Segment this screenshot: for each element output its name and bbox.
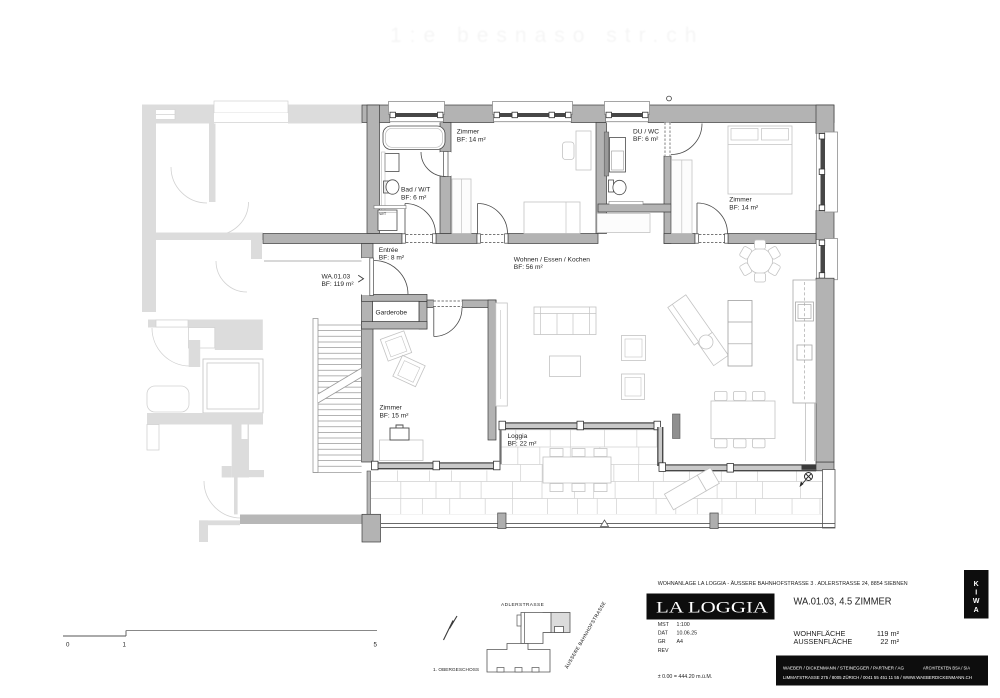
- svg-text:W: W: [973, 598, 980, 605]
- svg-text:1:100: 1:100: [677, 622, 690, 628]
- svg-text:BF: 56 m²: BF: 56 m²: [514, 264, 544, 271]
- svg-text:BF: 22 m²: BF: 22 m²: [508, 441, 538, 448]
- svg-text:5: 5: [374, 642, 378, 649]
- svg-text:± 0.00 = 444.20 m.ü.M.: ± 0.00 = 444.20 m.ü.M.: [658, 674, 713, 680]
- svg-text:BF: 15 m²: BF: 15 m²: [380, 412, 410, 419]
- svg-text:Loggia: Loggia: [508, 433, 528, 440]
- svg-text:GR: GR: [658, 639, 666, 645]
- svg-text:BF: 14 m²: BF: 14 m²: [457, 136, 487, 143]
- svg-text:Wohnen / Essen / Kochen: Wohnen / Essen / Kochen: [514, 256, 590, 263]
- svg-text:REV: REV: [658, 648, 669, 654]
- svg-text:MST: MST: [658, 622, 670, 628]
- svg-text:A: A: [974, 607, 979, 614]
- svg-text:10.06.25: 10.06.25: [677, 631, 698, 637]
- svg-text:K: K: [974, 581, 979, 588]
- svg-text:1:e besnaso str.ch: 1:e besnaso str.ch: [390, 24, 704, 47]
- svg-text:Zimmer: Zimmer: [729, 197, 752, 204]
- svg-text:Bad / W/T: Bad / W/T: [401, 187, 430, 194]
- svg-text:AUSSENFLÄCHE: AUSSENFLÄCHE: [794, 637, 853, 646]
- svg-text:WOHNANLAGE LA LOGGIA - ÄUSSERE: WOHNANLAGE LA LOGGIA - ÄUSSERE BAHNHOFST…: [658, 580, 908, 587]
- svg-text:WA.01.03, 4.5 ZIMMER: WA.01.03, 4.5 ZIMMER: [794, 596, 892, 608]
- svg-text:BF: 119 m²: BF: 119 m²: [322, 281, 355, 288]
- svg-text:Zimmer: Zimmer: [457, 129, 480, 136]
- svg-text:22 m²: 22 m²: [880, 637, 899, 646]
- svg-text:ARCHITEKTEN BSA / SIA: ARCHITEKTEN BSA / SIA: [923, 666, 971, 671]
- svg-text:I: I: [975, 590, 977, 597]
- svg-text:W/T: W/T: [379, 212, 387, 216]
- svg-text:DAT: DAT: [658, 631, 669, 637]
- svg-text:LA LOGGIA: LA LOGGIA: [656, 600, 769, 617]
- svg-text:ADLERSTRASSE: ADLERSTRASSE: [501, 602, 544, 608]
- svg-text:A4: A4: [677, 639, 684, 645]
- svg-text:LIMMATSTRASSE 275 / 8005 ZÜRIC: LIMMATSTRASSE 275 / 8005 ZÜRICH / 0041 5…: [783, 674, 972, 680]
- svg-text:DU / WC: DU / WC: [633, 128, 659, 135]
- svg-text:0: 0: [66, 642, 70, 649]
- svg-text:1: 1: [123, 642, 127, 649]
- svg-text:WA.01.03: WA.01.03: [322, 273, 351, 280]
- svg-text:BF: 6 m²: BF: 6 m²: [401, 194, 427, 201]
- svg-text:BF: 8 m²: BF: 8 m²: [379, 255, 405, 262]
- svg-text:BF: 6 m²: BF: 6 m²: [633, 136, 659, 143]
- svg-text:BF: 14 m²: BF: 14 m²: [729, 204, 759, 211]
- svg-text:Entrée: Entrée: [379, 247, 399, 254]
- svg-text:WAEBER / DICKENMANN / STEINEGG: WAEBER / DICKENMANN / STEINEGGER / PARTN…: [783, 666, 904, 671]
- svg-text:Zimmer: Zimmer: [380, 405, 403, 412]
- svg-text:Garderobe: Garderobe: [376, 310, 408, 317]
- svg-text:1. OBERGESCHOSS: 1. OBERGESCHOSS: [433, 667, 479, 673]
